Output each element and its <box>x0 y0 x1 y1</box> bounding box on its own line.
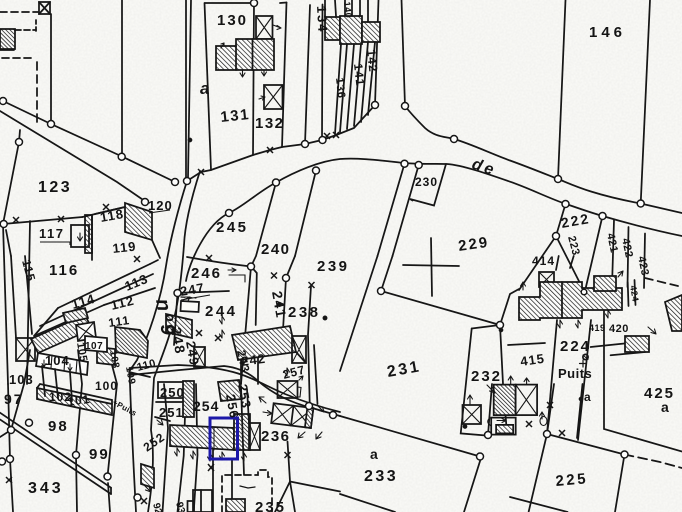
svg-text:238: 238 <box>288 304 321 321</box>
svg-text:251: 251 <box>159 405 184 420</box>
svg-text:225: 225 <box>555 470 589 490</box>
svg-text:a: a <box>200 79 209 98</box>
svg-text:98: 98 <box>48 418 69 435</box>
svg-text:246: 246 <box>191 265 222 282</box>
svg-text:99: 99 <box>89 446 110 463</box>
svg-text:240: 240 <box>261 241 291 258</box>
svg-text:103: 103 <box>9 372 34 387</box>
svg-text:a: a <box>370 446 378 462</box>
svg-text:224: 224 <box>560 338 591 355</box>
svg-text:93: 93 <box>173 501 187 512</box>
svg-text:Puits: Puits <box>558 366 592 381</box>
svg-text:100: 100 <box>95 379 118 393</box>
svg-text:235: 235 <box>255 499 286 512</box>
svg-text:425: 425 <box>644 385 675 402</box>
svg-text:230: 230 <box>415 175 438 189</box>
svg-text:107: 107 <box>85 341 103 352</box>
svg-text:116: 116 <box>49 262 79 279</box>
svg-text:132: 132 <box>255 115 285 132</box>
svg-text:146: 146 <box>589 24 626 41</box>
svg-text:104: 104 <box>45 353 70 368</box>
svg-text:414: 414 <box>532 254 555 268</box>
svg-text:119: 119 <box>112 239 137 256</box>
svg-text:236: 236 <box>261 428 291 445</box>
svg-text:245: 245 <box>216 219 249 236</box>
svg-text:343: 343 <box>28 480 64 497</box>
svg-text:244: 244 <box>205 303 238 320</box>
svg-text:141: 141 <box>351 63 367 87</box>
svg-text:92: 92 <box>150 502 164 512</box>
svg-text:120: 120 <box>148 198 173 213</box>
svg-text:134: 134 <box>314 5 330 33</box>
svg-text:419: 419 <box>589 323 606 333</box>
svg-text:239: 239 <box>317 258 350 275</box>
svg-text:130: 130 <box>217 12 248 29</box>
svg-text:97: 97 <box>4 391 24 407</box>
svg-text:117: 117 <box>39 226 64 241</box>
svg-text:a: a <box>584 390 591 404</box>
svg-text:136: 136 <box>333 77 347 99</box>
svg-text:111: 111 <box>107 313 130 330</box>
svg-text:a: a <box>661 399 669 415</box>
svg-text:123: 123 <box>38 179 72 196</box>
svg-text:233: 233 <box>364 468 398 485</box>
svg-text:232: 232 <box>471 368 502 385</box>
svg-text:254: 254 <box>193 398 219 414</box>
svg-text:420: 420 <box>609 323 629 335</box>
svg-text:131: 131 <box>220 106 251 126</box>
svg-text:250: 250 <box>160 385 185 400</box>
svg-text:140: 140 <box>342 1 354 18</box>
svg-text:142: 142 <box>364 49 380 73</box>
